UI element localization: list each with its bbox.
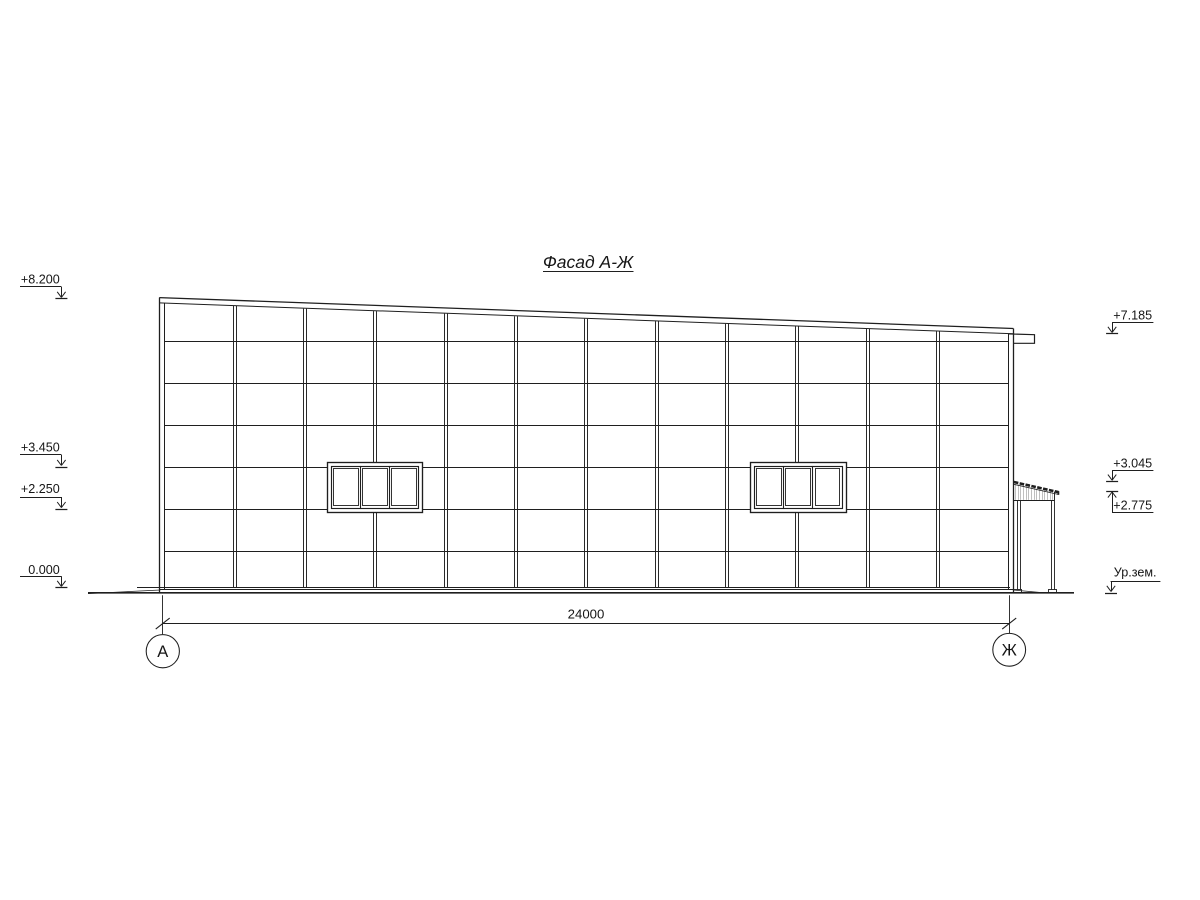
svg-text:+3.045: +3.045 (1113, 456, 1152, 470)
svg-text:24000: 24000 (568, 607, 605, 622)
svg-text:+8.200: +8.200 (21, 273, 60, 287)
svg-text:+2.775: +2.775 (1113, 499, 1152, 513)
svg-text:+2.250: +2.250 (21, 482, 60, 496)
svg-text:+7.185: +7.185 (1113, 308, 1152, 322)
svg-text:А: А (157, 643, 168, 661)
svg-text:Ж: Ж (1002, 642, 1018, 660)
svg-text:Фасад А-Ж: Фасад А-Ж (543, 252, 634, 272)
svg-text:+3.450: +3.450 (21, 441, 60, 455)
svg-text:Ур.зем.: Ур.зем. (1114, 565, 1157, 579)
svg-text:0.000: 0.000 (28, 563, 60, 577)
